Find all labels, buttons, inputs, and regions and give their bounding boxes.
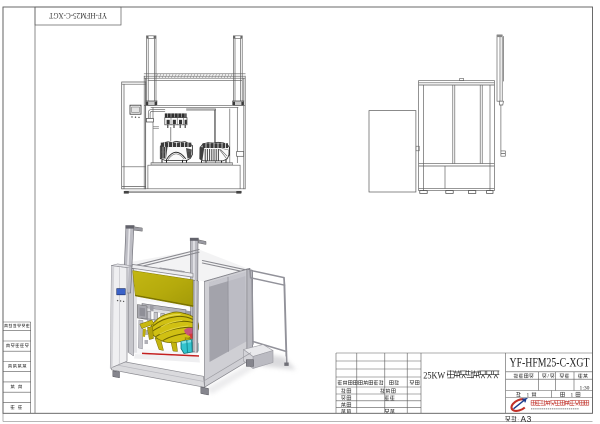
svg-text:1: 1 — [571, 392, 574, 398]
svg-text:1:30: 1:30 — [580, 386, 590, 392]
svg-text:1: 1 — [527, 392, 530, 398]
svg-text::: : — [518, 417, 519, 422]
svg-text:YF-HFM25-C-XGT: YF-HFM25-C-XGT — [510, 355, 590, 369]
svg-text:A3: A3 — [521, 414, 532, 424]
svg-text:YF-HFM25-C-XGT: YF-HFM25-C-XGT — [49, 11, 107, 20]
svg-text:25KW: 25KW — [423, 371, 445, 381]
